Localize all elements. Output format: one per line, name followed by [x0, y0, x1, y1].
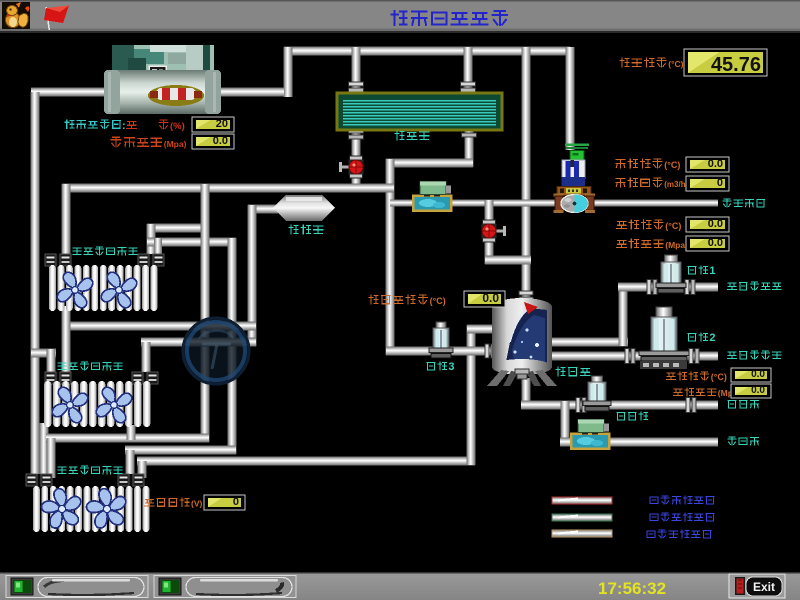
svg-text:(m3/h): (m3/h)	[664, 180, 688, 189]
svg-text:(V): (V)	[191, 499, 203, 509]
svg-text:0: 0	[717, 177, 723, 189]
svg-text:20: 20	[216, 118, 228, 130]
svg-text:1: 1	[709, 265, 715, 277]
svg-text:(°C): (°C)	[711, 372, 727, 382]
svg-text:Exit: Exit	[753, 580, 775, 594]
svg-text:0.0: 0.0	[482, 291, 499, 305]
svg-text:17:56:32: 17:56:32	[598, 579, 666, 598]
svg-text:0.0: 0.0	[708, 237, 723, 249]
svg-text:(Mpa): (Mpa)	[164, 139, 187, 149]
svg-text:0.0: 0.0	[751, 385, 765, 396]
svg-text:(°C): (°C)	[430, 296, 446, 306]
svg-text:0.0: 0.0	[751, 369, 765, 380]
svg-text:3: 3	[448, 361, 454, 373]
svg-text:0.0: 0.0	[708, 218, 723, 230]
svg-text:(°C): (°C)	[668, 59, 683, 69]
svg-text:(Mpa): (Mpa)	[665, 240, 688, 250]
svg-text:0.0: 0.0	[708, 158, 723, 170]
svg-text:2: 2	[709, 332, 715, 344]
svg-text::: :	[122, 120, 126, 132]
svg-text:0: 0	[233, 496, 239, 508]
svg-text:45.76: 45.76	[711, 54, 761, 76]
svg-text:(°C): (°C)	[664, 160, 680, 170]
svg-text:0.0: 0.0	[213, 135, 228, 147]
svg-text:(%): (%)	[170, 121, 185, 132]
svg-text:(°C): (°C)	[665, 221, 681, 231]
